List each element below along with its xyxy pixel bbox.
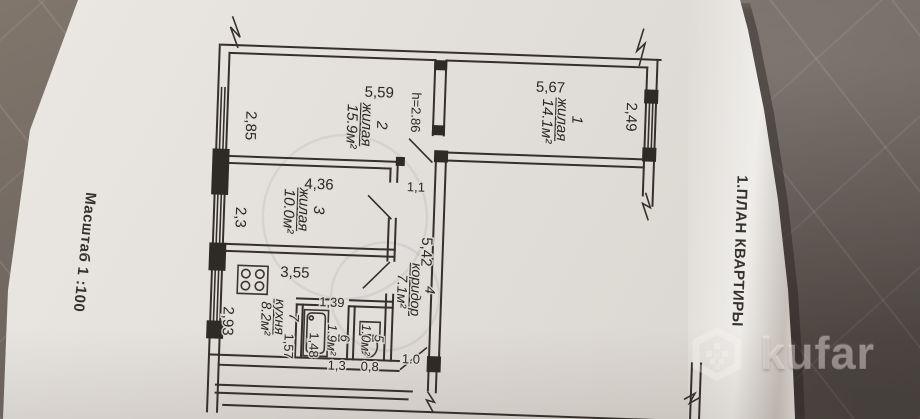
dim-wc-width: 0,8	[360, 359, 379, 375]
kufar-watermark-text: kufar	[760, 328, 875, 380]
room4-area: 7.1м²	[394, 274, 411, 310]
photo-scene: Масштаб 1 :100 1.ПЛАН КВАРТИРЫ	[0, 0, 920, 419]
dim-room1-width: 5,67	[536, 79, 566, 97]
kufar-watermark: kufar	[688, 326, 875, 382]
room-label-3: 3 жилая 10.0м²	[279, 186, 328, 236]
kufar-logo-dots	[706, 343, 728, 369]
dim-entrance-width: 1.0	[402, 351, 421, 367]
dim-kitchen-width: 3,55	[280, 264, 310, 282]
dim-kitchen-depth: 2,93	[219, 306, 237, 336]
room2-area: 15.9м²	[342, 104, 361, 150]
dim-room2-depth: 2,85	[242, 111, 260, 141]
dim-room1-depth: 2,49	[622, 102, 640, 132]
room1-area: 14.1м²	[538, 98, 557, 144]
dim-bath-width: 1,39	[319, 294, 345, 310]
room-label-1: 1 жилая 14.1м²	[538, 96, 587, 146]
dim-corridor-width: 1,1	[407, 179, 426, 195]
room3-area: 10.0м²	[279, 189, 298, 235]
room-label-5: 5 1.0м²	[358, 324, 387, 357]
room6-area: 1.9м²	[324, 324, 340, 356]
stove-icon	[237, 265, 268, 294]
dim-room3-depth: 2,3	[231, 207, 249, 228]
dim-bath-bottom: 1,3	[327, 358, 346, 374]
room5-area: 1.0м²	[358, 324, 374, 356]
dim-ceiling-height: h=2.86	[408, 92, 424, 133]
room7-area: 8.2м²	[258, 301, 275, 337]
dim-room2-width: 5,59	[364, 84, 394, 102]
kufar-logo-icon	[688, 326, 746, 382]
dim-tub-length: 1,48	[306, 332, 322, 358]
